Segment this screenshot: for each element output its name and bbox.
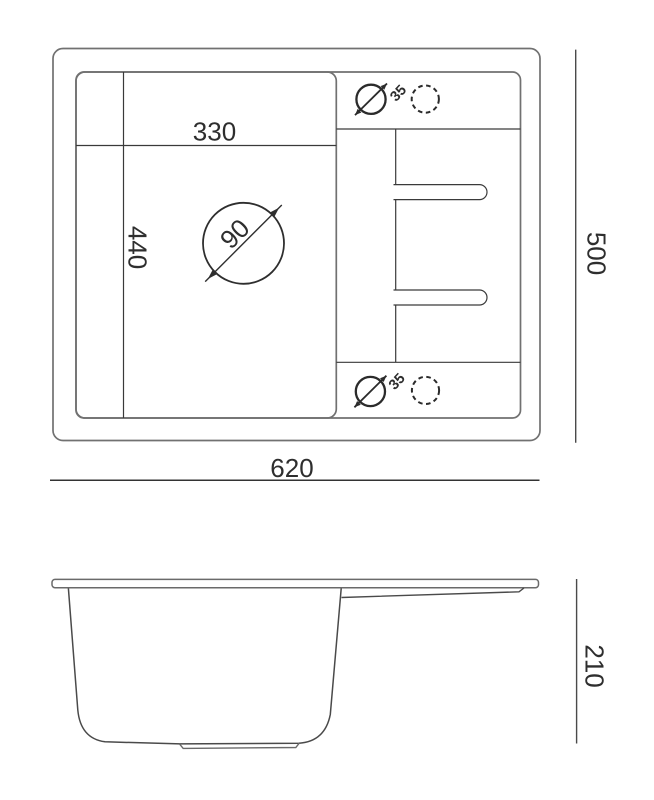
svg-text:90: 90 xyxy=(214,213,256,255)
svg-text:35: 35 xyxy=(386,371,409,394)
svg-text:500: 500 xyxy=(582,232,612,275)
svg-text:440: 440 xyxy=(123,226,153,269)
svg-text:620: 620 xyxy=(270,453,313,483)
svg-text:330: 330 xyxy=(193,117,236,147)
svg-text:210: 210 xyxy=(580,644,610,687)
svg-text:35: 35 xyxy=(387,82,410,105)
